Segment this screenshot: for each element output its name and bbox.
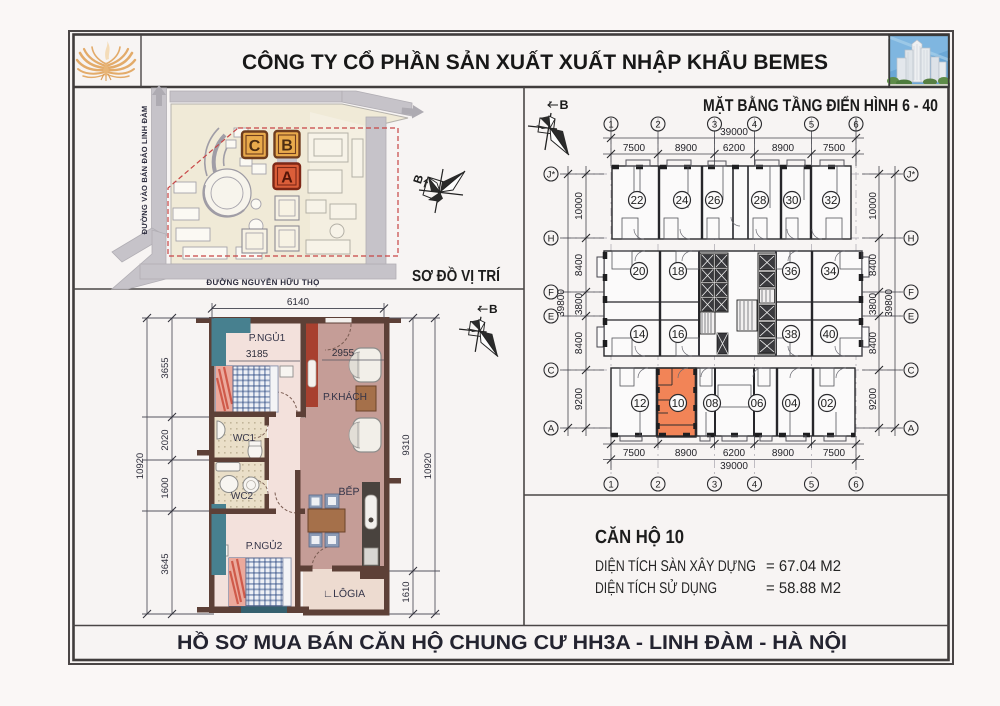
svg-text:F: F xyxy=(548,288,554,299)
svg-text:8400: 8400 xyxy=(574,253,585,276)
svg-text:P.KHÁCH: P.KHÁCH xyxy=(323,391,367,403)
svg-text:DIỆN TÍCH SỬ DỤNG: DIỆN TÍCH SỬ DỤNG xyxy=(595,579,717,597)
svg-text:39000: 39000 xyxy=(720,461,748,472)
svg-text:9200: 9200 xyxy=(868,387,879,410)
svg-text:C: C xyxy=(249,138,261,155)
svg-text:8400: 8400 xyxy=(868,331,879,354)
svg-text:1: 1 xyxy=(608,480,613,491)
svg-text:6200: 6200 xyxy=(723,143,746,154)
svg-text:C: C xyxy=(908,366,915,377)
svg-text:26: 26 xyxy=(708,195,721,207)
svg-text:H: H xyxy=(908,234,915,245)
svg-text:2: 2 xyxy=(655,120,660,131)
svg-text:= 58.88 M2: = 58.88 M2 xyxy=(766,580,841,597)
svg-text:ĐƯỜNG NGUYỄN HỮU THỌ: ĐƯỜNG NGUYỄN HỮU THỌ xyxy=(206,277,319,287)
svg-text:A: A xyxy=(281,170,293,187)
svg-text:02: 02 xyxy=(821,398,834,410)
svg-text:06: 06 xyxy=(751,398,764,410)
svg-text:A: A xyxy=(548,424,555,435)
svg-text:3185: 3185 xyxy=(246,349,269,360)
svg-text:3: 3 xyxy=(712,480,717,491)
svg-text:36: 36 xyxy=(785,266,798,278)
svg-text:20: 20 xyxy=(633,266,646,278)
svg-text:DIỆN TÍCH SÀN XÂY DỰNG: DIỆN TÍCH SÀN XÂY DỰNG xyxy=(595,557,756,575)
svg-text:28: 28 xyxy=(754,195,767,207)
svg-text:30: 30 xyxy=(786,195,799,207)
svg-text:MẶT BẰNG TẦNG ĐIỂN HÌNH 6 - 40: MẶT BẰNG TẦNG ĐIỂN HÌNH 6 - 40 xyxy=(703,95,938,115)
svg-text:40: 40 xyxy=(823,329,836,341)
svg-text:1: 1 xyxy=(608,120,613,131)
svg-text:6200: 6200 xyxy=(723,448,746,459)
svg-text:4: 4 xyxy=(752,480,757,491)
svg-text:10920: 10920 xyxy=(423,453,434,479)
svg-text:E: E xyxy=(548,312,554,323)
svg-text:7500: 7500 xyxy=(823,143,846,154)
svg-text:8900: 8900 xyxy=(675,448,698,459)
svg-text:= 67.04 M2: = 67.04 M2 xyxy=(766,558,841,575)
svg-text:04: 04 xyxy=(785,398,798,410)
svg-text:F: F xyxy=(908,288,914,299)
svg-text:24: 24 xyxy=(676,195,689,207)
svg-text:E: E xyxy=(908,312,914,323)
svg-text:32: 32 xyxy=(825,195,838,207)
svg-text:9310: 9310 xyxy=(401,434,412,455)
svg-text:WC1: WC1 xyxy=(233,433,256,444)
svg-text:10920: 10920 xyxy=(135,453,146,479)
svg-text:22: 22 xyxy=(631,195,644,207)
svg-text:A: A xyxy=(908,424,915,435)
svg-text:18: 18 xyxy=(672,266,685,278)
svg-text:6140: 6140 xyxy=(287,297,310,308)
svg-text:3: 3 xyxy=(712,120,717,131)
svg-text:SƠ ĐỒ VỊ TRÍ: SƠ ĐỒ VỊ TRÍ xyxy=(412,266,500,285)
svg-text:CÔNG TY CỔ PHẦN SẢN XUẤT XUẤT: CÔNG TY CỔ PHẦN SẢN XUẤT XUẤT NHẬP KHẨU … xyxy=(242,50,828,74)
svg-text:34: 34 xyxy=(824,266,837,278)
svg-text:2: 2 xyxy=(655,480,660,491)
svg-text:7500: 7500 xyxy=(623,448,646,459)
svg-text:BẾP: BẾP xyxy=(338,485,359,498)
svg-text:P.NGỦ1: P.NGỦ1 xyxy=(249,331,286,344)
svg-text:9200: 9200 xyxy=(574,387,585,410)
svg-text:6: 6 xyxy=(853,480,858,491)
svg-text:1610: 1610 xyxy=(401,581,412,602)
svg-text:14: 14 xyxy=(633,329,646,341)
svg-text:10000: 10000 xyxy=(868,192,879,220)
svg-text:7500: 7500 xyxy=(623,143,646,154)
svg-text:39800: 39800 xyxy=(884,289,895,317)
svg-text:J*: J* xyxy=(907,170,916,181)
svg-text:5: 5 xyxy=(809,120,814,131)
svg-text:4: 4 xyxy=(752,120,757,131)
svg-text:10: 10 xyxy=(672,398,685,410)
svg-text:8900: 8900 xyxy=(772,143,795,154)
svg-text:3655: 3655 xyxy=(160,357,171,378)
svg-text:8400: 8400 xyxy=(868,253,879,276)
svg-text:3800: 3800 xyxy=(574,292,585,315)
svg-text:1600: 1600 xyxy=(160,477,171,498)
svg-text:ĐƯỜNG VÀO BÁN ĐẢO LINH ĐÀM: ĐƯỜNG VÀO BÁN ĐẢO LINH ĐÀM xyxy=(140,106,149,235)
svg-text:12: 12 xyxy=(634,398,647,410)
svg-text:2955: 2955 xyxy=(332,348,355,359)
svg-text:8900: 8900 xyxy=(772,448,795,459)
svg-text:38: 38 xyxy=(785,329,798,341)
svg-text:8900: 8900 xyxy=(675,143,698,154)
svg-text:8400: 8400 xyxy=(574,331,585,354)
svg-text:C: C xyxy=(548,366,555,377)
svg-text:39000: 39000 xyxy=(720,127,748,138)
svg-text:10000: 10000 xyxy=(574,192,585,220)
svg-text:2020: 2020 xyxy=(160,429,171,450)
svg-text:H: H xyxy=(548,234,555,245)
svg-text:5: 5 xyxy=(809,480,814,491)
svg-text:6: 6 xyxy=(853,120,858,131)
svg-text:16: 16 xyxy=(672,329,685,341)
svg-text:P.NGỦ2: P.NGỦ2 xyxy=(246,539,283,552)
svg-text:CĂN HỘ 10: CĂN HỘ 10 xyxy=(595,525,684,548)
svg-text:08: 08 xyxy=(706,398,719,410)
svg-text:∟LÔGIA: ∟LÔGIA xyxy=(323,587,365,600)
svg-text:7500: 7500 xyxy=(823,448,846,459)
svg-text:3645: 3645 xyxy=(160,553,171,574)
svg-text:WC2: WC2 xyxy=(231,491,254,502)
svg-text:HỒ SƠ MUA BÁN CĂN HỘ CHUNG CƯ: HỒ SƠ MUA BÁN CĂN HỘ CHUNG CƯ HH3A - LIN… xyxy=(177,631,847,654)
svg-text:J*: J* xyxy=(547,170,556,181)
svg-text:B: B xyxy=(281,138,293,155)
svg-text:3800: 3800 xyxy=(868,292,879,315)
